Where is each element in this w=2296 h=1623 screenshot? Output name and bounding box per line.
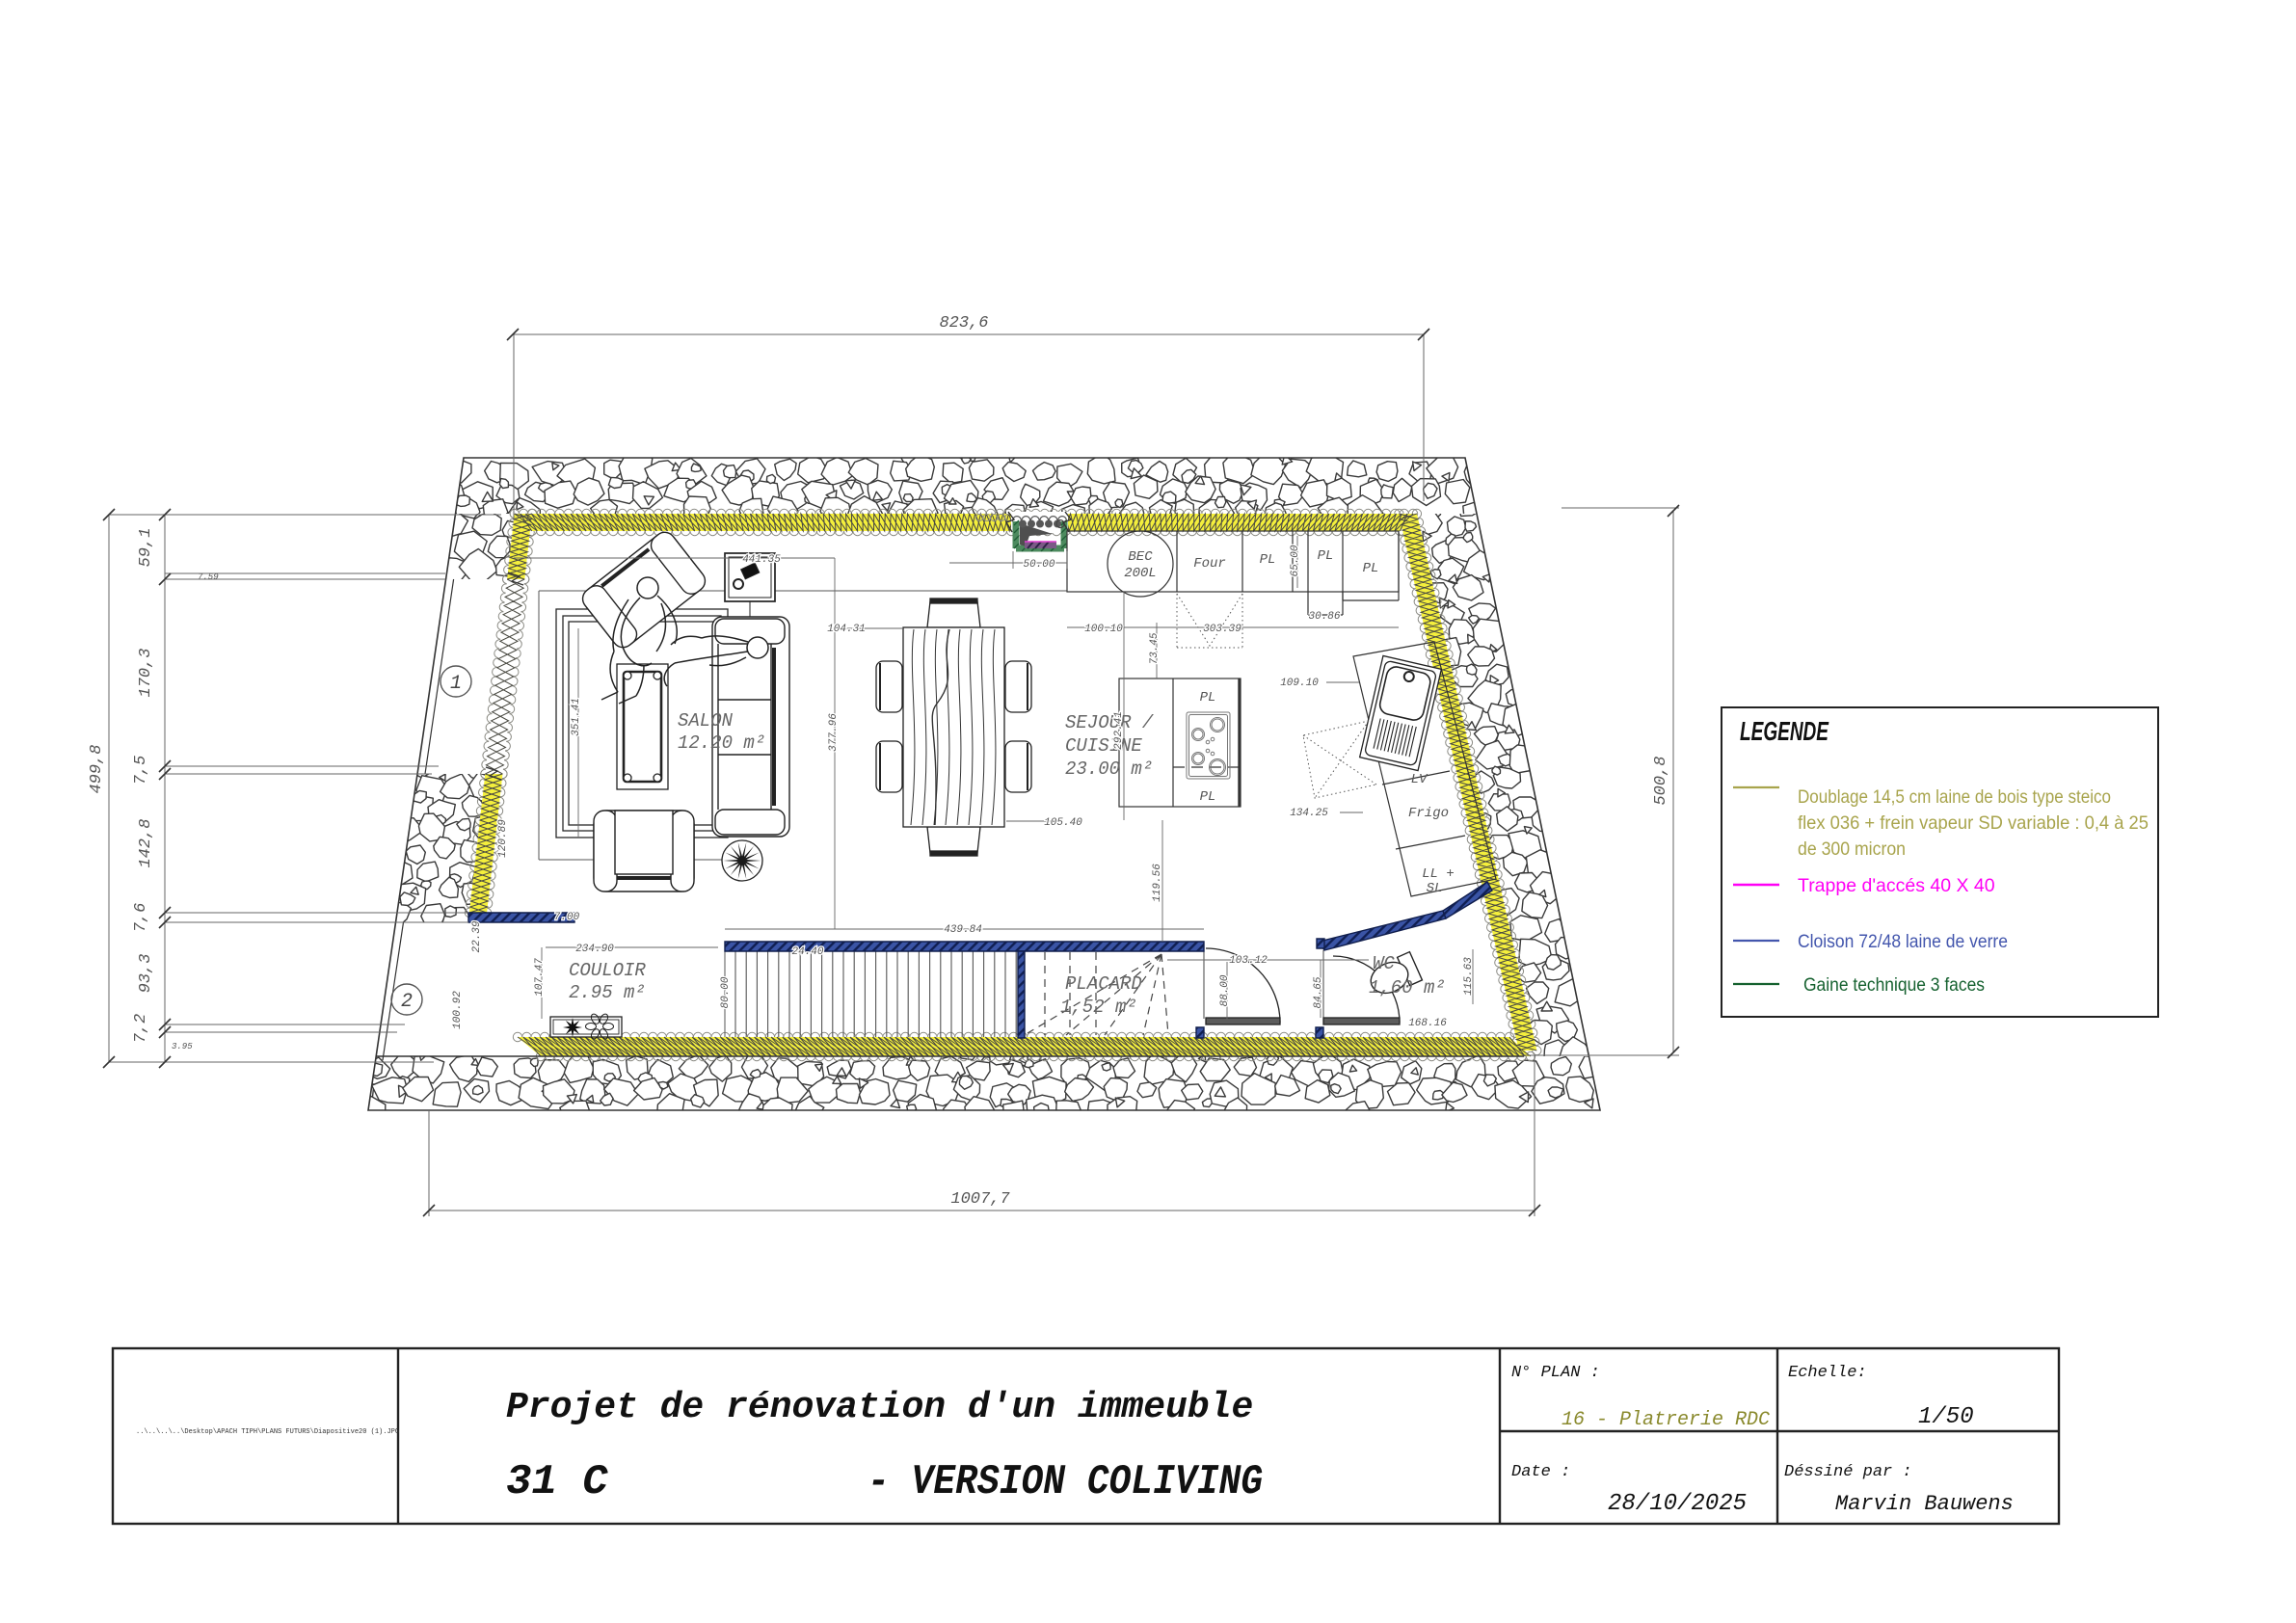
svg-text:N° PLAN :: N° PLAN :	[1511, 1364, 1600, 1382]
svg-text:105.40: 105.40	[1044, 817, 1082, 829]
svg-text:439.84: 439.84	[944, 924, 982, 936]
svg-text:115.63: 115.63	[1463, 957, 1475, 996]
svg-text:100.10: 100.10	[1084, 624, 1123, 635]
svg-text:PL: PL	[1260, 552, 1276, 568]
svg-text:23.00 m²: 23.00 m²	[1065, 758, 1153, 780]
svg-text:7,2: 7,2	[132, 1014, 150, 1044]
svg-text:50.00: 50.00	[1023, 559, 1055, 571]
svg-text:499,8: 499,8	[88, 744, 106, 793]
svg-text:SALON: SALON	[678, 710, 734, 732]
svg-text:Cloison 72/48 laine de verre: Cloison 72/48 laine de verre	[1798, 931, 2008, 952]
svg-text:142,8: 142,8	[137, 818, 155, 867]
svg-text:Echelle:: Echelle:	[1788, 1364, 1867, 1382]
svg-text:1/50: 1/50	[1918, 1404, 1974, 1430]
svg-text:100.92: 100.92	[452, 991, 464, 1029]
svg-text:351.41: 351.41	[571, 698, 582, 736]
svg-text:2: 2	[401, 991, 413, 1013]
svg-text:LEGENDE: LEGENDE	[1740, 716, 1829, 746]
svg-text:168.16: 168.16	[1408, 1018, 1447, 1029]
svg-text:120.89: 120.89	[497, 819, 509, 858]
svg-text:LL +: LL +	[1422, 866, 1455, 882]
svg-text:292.41: 292.41	[1113, 711, 1125, 750]
svg-text:- VERSION COLIVING: - VERSION COLIVING	[868, 1458, 1263, 1506]
svg-text:31 C: 31 C	[506, 1458, 608, 1506]
svg-text:1007,7: 1007,7	[950, 1190, 1010, 1209]
svg-text:PL: PL	[1200, 789, 1216, 805]
svg-text:30.86: 30.86	[1308, 611, 1340, 623]
svg-text:134.25: 134.25	[1290, 808, 1328, 819]
svg-text:..\..\..\..\Desktop\APACH TIPH: ..\..\..\..\Desktop\APACH TIPH\PLANS FUT…	[136, 1428, 399, 1436]
svg-text:500,8: 500,8	[1652, 756, 1670, 805]
svg-text:93,3: 93,3	[137, 954, 155, 994]
svg-text:88.00: 88.00	[1219, 974, 1231, 1006]
svg-text:flex 036 + frein vapeur SD var: flex 036 + frein vapeur SD variable : 0,…	[1798, 812, 2149, 834]
svg-text:1,52 m²: 1,52 m²	[1060, 997, 1137, 1018]
svg-text:BEC: BEC	[1128, 549, 1153, 565]
svg-text:2.95 m²: 2.95 m²	[569, 982, 646, 1003]
svg-text:SEJOUR /: SEJOUR /	[1065, 712, 1155, 733]
svg-text:28/10/2025: 28/10/2025	[1608, 1491, 1747, 1517]
svg-text:PL: PL	[1363, 561, 1379, 576]
svg-text:84.65: 84.65	[1313, 976, 1324, 1008]
svg-text:7.59: 7.59	[198, 572, 219, 582]
svg-text:PLACARD: PLACARD	[1065, 973, 1142, 995]
svg-text:PL: PL	[1318, 548, 1334, 564]
svg-text:Four: Four	[1193, 556, 1226, 572]
svg-text:170,3: 170,3	[137, 648, 155, 697]
svg-text:COULOIR: COULOIR	[569, 960, 646, 981]
svg-text:Frigo: Frigo	[1408, 806, 1449, 821]
svg-text:12.20 m²: 12.20 m²	[678, 732, 765, 754]
svg-text:WC: WC	[1373, 953, 1395, 974]
svg-text:59,1: 59,1	[137, 528, 155, 568]
svg-text:109.10: 109.10	[1280, 678, 1319, 689]
svg-text:234.90: 234.90	[575, 944, 614, 955]
svg-text:441.35: 441.35	[742, 554, 781, 566]
svg-text:823,6: 823,6	[939, 314, 988, 333]
svg-text:7.00: 7.00	[554, 912, 580, 923]
svg-text:65.00: 65.00	[1290, 545, 1301, 576]
svg-text:3.95: 3.95	[172, 1042, 193, 1051]
svg-text:103.12: 103.12	[1229, 955, 1268, 967]
svg-text:de 300 micron: de 300 micron	[1798, 838, 1906, 860]
svg-text:1: 1	[450, 673, 462, 695]
svg-text:Date :: Date :	[1511, 1463, 1570, 1481]
svg-text:CUISINE: CUISINE	[1065, 735, 1142, 757]
svg-text:377.96: 377.96	[828, 713, 840, 752]
svg-text:7,5: 7,5	[132, 756, 150, 785]
svg-text:73.45: 73.45	[1149, 632, 1161, 664]
svg-text:119.56: 119.56	[1152, 864, 1163, 902]
svg-text:22.39: 22.39	[471, 920, 483, 952]
svg-text:303.39: 303.39	[1203, 624, 1241, 635]
svg-text:Gaine technique 3 faces: Gaine technique 3 faces	[1803, 974, 1985, 996]
svg-text:Déssiné par :: Déssiné par :	[1784, 1463, 1912, 1481]
svg-text:Projet de rénovation d'un imme: Projet de rénovation d'un immeuble	[506, 1387, 1253, 1428]
svg-text:104.31: 104.31	[827, 624, 866, 635]
svg-text:80.00: 80.00	[720, 976, 732, 1008]
svg-text:SL: SL	[1427, 881, 1443, 896]
svg-text:7,6: 7,6	[132, 903, 150, 933]
svg-text:24.40: 24.40	[791, 946, 823, 958]
svg-text:Marvin Bauwens: Marvin Bauwens	[1835, 1492, 2014, 1516]
svg-text:PL: PL	[1200, 690, 1216, 705]
svg-text:16 - Platrerie RDC: 16 - Platrerie RDC	[1562, 1409, 1770, 1431]
svg-text:107.47: 107.47	[534, 958, 546, 997]
svg-text:200L: 200L	[1124, 566, 1157, 581]
svg-text:LV: LV	[1411, 772, 1428, 787]
svg-text:1,60 m²: 1,60 m²	[1369, 977, 1446, 998]
svg-text:Trappe d'accés 40 X 40: Trappe d'accés 40 X 40	[1798, 875, 1995, 896]
svg-text:Doublage 14,5 cm laine de bois: Doublage 14,5 cm laine de bois type stei…	[1798, 786, 2111, 808]
